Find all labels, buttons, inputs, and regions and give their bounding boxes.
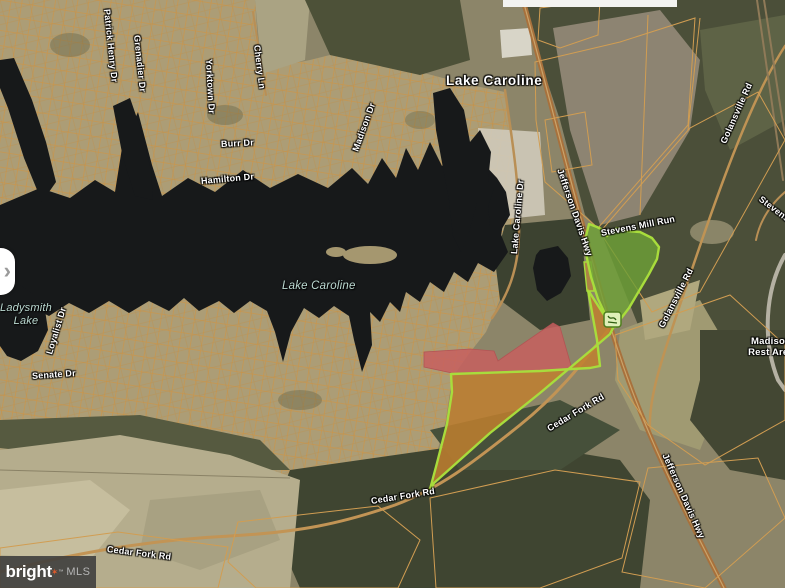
next-photo-button[interactable]: › (0, 248, 15, 295)
map-viewport[interactable]: Patrick Henry Dr Grenadier Dr Yorktown D… (0, 0, 785, 588)
brightmls-logo: bright✶™MLS (0, 556, 96, 588)
brand-suffix: MLS (66, 566, 90, 578)
parcel-marker-icon (604, 312, 621, 327)
road-label-burr: Burr Dr (221, 137, 254, 149)
poi-label-madison-rest-line1: Madison (736, 336, 785, 347)
top-overlay-strip (503, 0, 677, 7)
brand-star-icon: ✶ (51, 567, 59, 578)
water-label-ladysmith-line1: Ladysmith (0, 302, 52, 315)
brand-trademark: ™ (58, 569, 63, 575)
water-label-ladysmith-line2: Lake (0, 315, 52, 328)
chevron-right-icon: › (4, 258, 11, 284)
town-label-lake-caroline: Lake Caroline (446, 73, 542, 88)
poi-label-madison-rest-line2: Rest Area (736, 347, 785, 358)
brand-name: bright (5, 562, 51, 582)
water-label-lake-caroline: Lake Caroline (282, 280, 356, 292)
island (343, 246, 397, 264)
